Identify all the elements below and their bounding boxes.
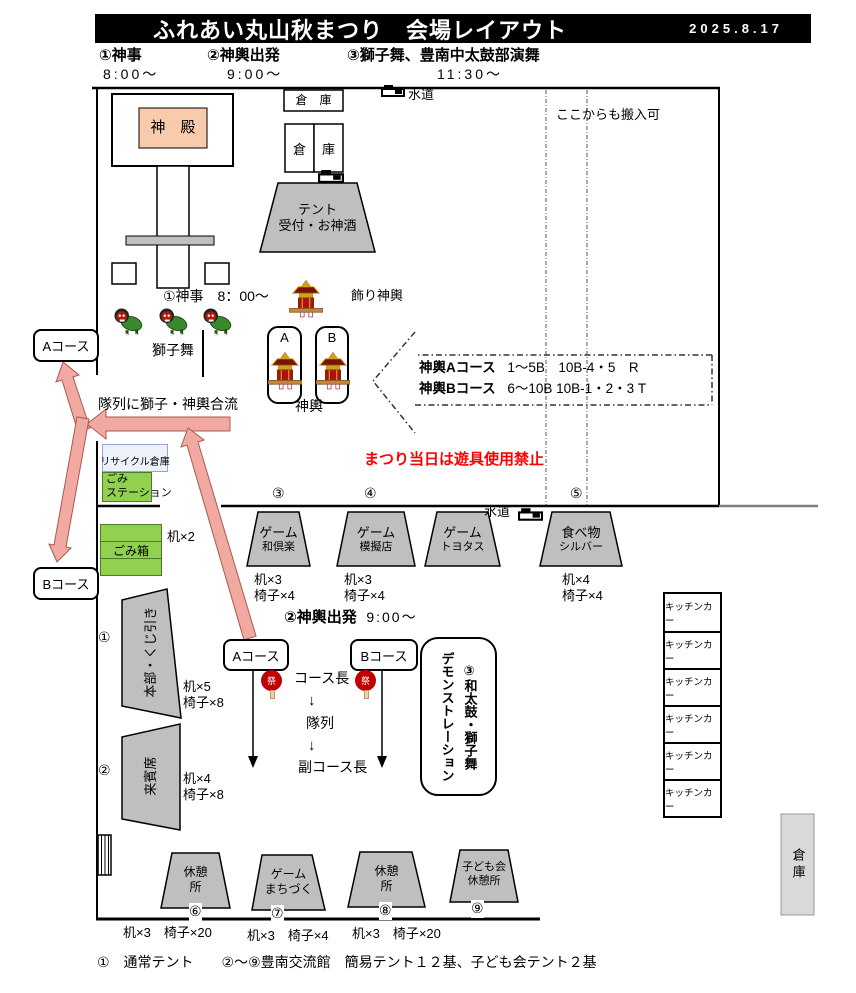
kitchen-car-slot: キッチンカー (665, 631, 720, 668)
tent-7-note: 机×3 椅子×4 (247, 928, 329, 944)
warehouse-mid-label-right: 庫 (314, 140, 343, 160)
merge-note: 隊列に獅子・神輿合流 (98, 396, 238, 414)
water-top-label: 水道 (408, 87, 434, 103)
booth-5-sublabel: シルバー (559, 541, 603, 555)
mikoshi-label: 神輿 (295, 398, 323, 416)
booth-5-label: 食べ物 (561, 525, 600, 541)
booth-4-chairs: 椅子×4 (344, 588, 385, 604)
tent-9-label: 子ども会 (462, 861, 506, 875)
booth-4-num: ④ (364, 485, 377, 503)
warehouse-top-label: 倉 庫 (284, 90, 343, 111)
tent-6-sublabel: 所 (189, 880, 201, 895)
mikoshi-icon (268, 352, 302, 389)
route-b-detail: 6～10B 10B-1・2・3 T (507, 381, 646, 396)
tent-8-note: 机×3 椅子×20 (352, 926, 441, 942)
course-b-badge: Bコース (33, 567, 99, 600)
booth-5-chairs: 椅子×4 (562, 588, 603, 604)
playground-warning: まつり当日は遊具使用禁止 (364, 451, 544, 470)
booth-5-desks: 机×4 (562, 572, 603, 588)
tent-1-label: 本部・くじ引き (143, 592, 159, 712)
water-mid-label: 水道 (484, 504, 510, 520)
tent-8-label: 休憩 (374, 864, 398, 879)
departure-time: 9:00～ (366, 609, 417, 625)
schedule-time-2: 9:00～ (227, 66, 283, 84)
kitchen-car-slot: キッチンカー (665, 705, 720, 742)
booth-3-label: ゲーム (259, 525, 298, 541)
demo-line-2: デモンストレーション (438, 652, 457, 782)
tent-7-num: ⑦ (271, 905, 284, 923)
footnote: ① 通常テント ②～⑨豊南交流館 簡易テント１２基、子ども会テント２基 (97, 954, 597, 972)
page-title: ふれあい丸山秋まつり 会場レイアウト (153, 13, 567, 45)
kitchen-car-column: キッチンカー キッチンカー キッチンカー キッチンカー キッチンカー キッチンカ… (663, 592, 722, 818)
tent-2-num: ② (98, 762, 111, 780)
lion-dance-icon (203, 308, 232, 336)
sub-leader-label: 副コース長 (298, 759, 367, 777)
lion-dance-icon (114, 308, 143, 336)
booth-toyota-label: ゲーム (443, 525, 482, 541)
warehouse-right-label: 倉庫 (781, 814, 814, 915)
column-label: 隊列 (306, 715, 334, 733)
tent-8-sublabel: 所 (380, 879, 392, 894)
tent-7-sublabel: まちづく (264, 882, 312, 897)
booth-3-num: ③ (272, 485, 285, 503)
reception-tent-sublabel: 受付・お神酒 (278, 218, 356, 234)
trash-station-label-1: ごみ (106, 473, 151, 487)
carry-in-note: ここからも搬入可 (556, 107, 660, 123)
title-bar: ふれあい丸山秋まつり 会場レイアウト 2025.8.17 (95, 14, 811, 43)
booth-3-desks: 机×3 (254, 572, 295, 588)
booth-3-chairs: 椅子×4 (254, 588, 295, 604)
booth-3-sublabel: 和倶楽 (262, 541, 295, 555)
route-a-name: 神輿Aコース (419, 360, 496, 375)
slot-a-letter: A (268, 330, 301, 346)
departure-label: ②神輿出発 (284, 609, 357, 626)
tent-9-sublabel: 休憩所 (468, 875, 501, 889)
tent-9-num: ⑨ (471, 900, 484, 918)
kitchen-car-slot: キッチンカー (665, 594, 720, 631)
faucet-icon (519, 508, 542, 519)
tent-2-desks: 机×4 (183, 771, 224, 787)
course-a-start-badge: Aコース (223, 639, 289, 671)
tent-7-label: ゲーム (271, 867, 307, 882)
demo-line-1: ③和太鼓・獅子舞 (461, 664, 480, 770)
venue-layout-map: ふれあい丸山秋まつり 会場レイアウト 2025.8.17 ①神事 8:00～ ②… (0, 0, 856, 993)
shinji-label: ①神事 8：00～ (163, 288, 269, 306)
taiko-lion-demo-box: ③和太鼓・獅子舞 デモンストレーション (420, 637, 497, 796)
tent-6-note: 机×3 椅子×20 (123, 925, 212, 941)
course-b-start-badge: Bコース (350, 639, 418, 671)
schedule-time-3: 11:30～ (437, 66, 503, 84)
desks-2-label: 机×2 (167, 529, 195, 545)
tent-1-chairs: 椅子×8 (183, 695, 224, 711)
tent-2-chairs: 椅子×8 (183, 787, 224, 803)
course-a-badge: Aコース (33, 329, 99, 362)
tent-6-label: 休憩 (183, 865, 207, 880)
festival-fan-icon: 祭 (261, 670, 282, 691)
deco-mikoshi-label: 飾り神輿 (351, 288, 403, 304)
booth-4-label: ゲーム (357, 525, 396, 541)
schedule-item-1: ①神事 (99, 47, 142, 66)
trash-station-label-2: ステーション (106, 487, 151, 501)
tent-2-label: 来賓席 (143, 736, 159, 816)
course-leader-label: コース長 (294, 670, 349, 688)
recycle-warehouse: リサイクル倉庫 (102, 444, 168, 472)
tent-1-desks: 机×5 (183, 679, 224, 695)
booth-toyota-sublabel: トヨタス (441, 541, 485, 555)
trash-can-stack: ごみ箱 (100, 524, 162, 576)
mikoshi-icon (289, 280, 323, 317)
date: 2025.8.17 (689, 21, 783, 36)
booth-4-desks: 机×3 (344, 572, 385, 588)
lion-dance-label: 獅子舞 (152, 342, 194, 360)
tent-8-num: ⑧ (379, 902, 392, 920)
route-b-name: 神輿Bコース (419, 381, 496, 396)
down-arrow-glyph: ↓ (308, 737, 316, 756)
kitchen-car-slot: キッチンカー (665, 779, 720, 816)
mikoshi-icon (316, 352, 350, 389)
booth-5-num: ⑤ (570, 485, 583, 503)
tent-1-num: ① (98, 629, 111, 647)
reception-tent-label: テント (298, 202, 337, 218)
kitchen-car-slot: キッチンカー (665, 668, 720, 705)
schedule-time-1: 8:00～ (103, 66, 159, 84)
kitchen-car-slot: キッチンカー (665, 742, 720, 779)
festival-fan-icon: 祭 (355, 670, 376, 691)
faucet-icon (382, 85, 404, 96)
booth-4-sublabel: 模擬店 (360, 541, 393, 555)
tent-6-num: ⑥ (189, 903, 202, 921)
warehouse-mid-label-left: 倉 (285, 140, 314, 160)
schedule-item-3: ③獅子舞、豊南中太鼓部演舞 (347, 47, 540, 66)
schedule-item-2: ②神輿出発 (207, 47, 280, 66)
trash-cans-label: ごみ箱 (100, 541, 162, 559)
lion-dance-icon (159, 308, 188, 336)
shrine-hall-label: 神 殿 (139, 108, 207, 148)
down-arrow-glyph: ↓ (308, 692, 316, 711)
slot-b-letter: B (316, 330, 348, 346)
route-a-detail: 1～5B 10B-4・5 R (507, 360, 638, 375)
